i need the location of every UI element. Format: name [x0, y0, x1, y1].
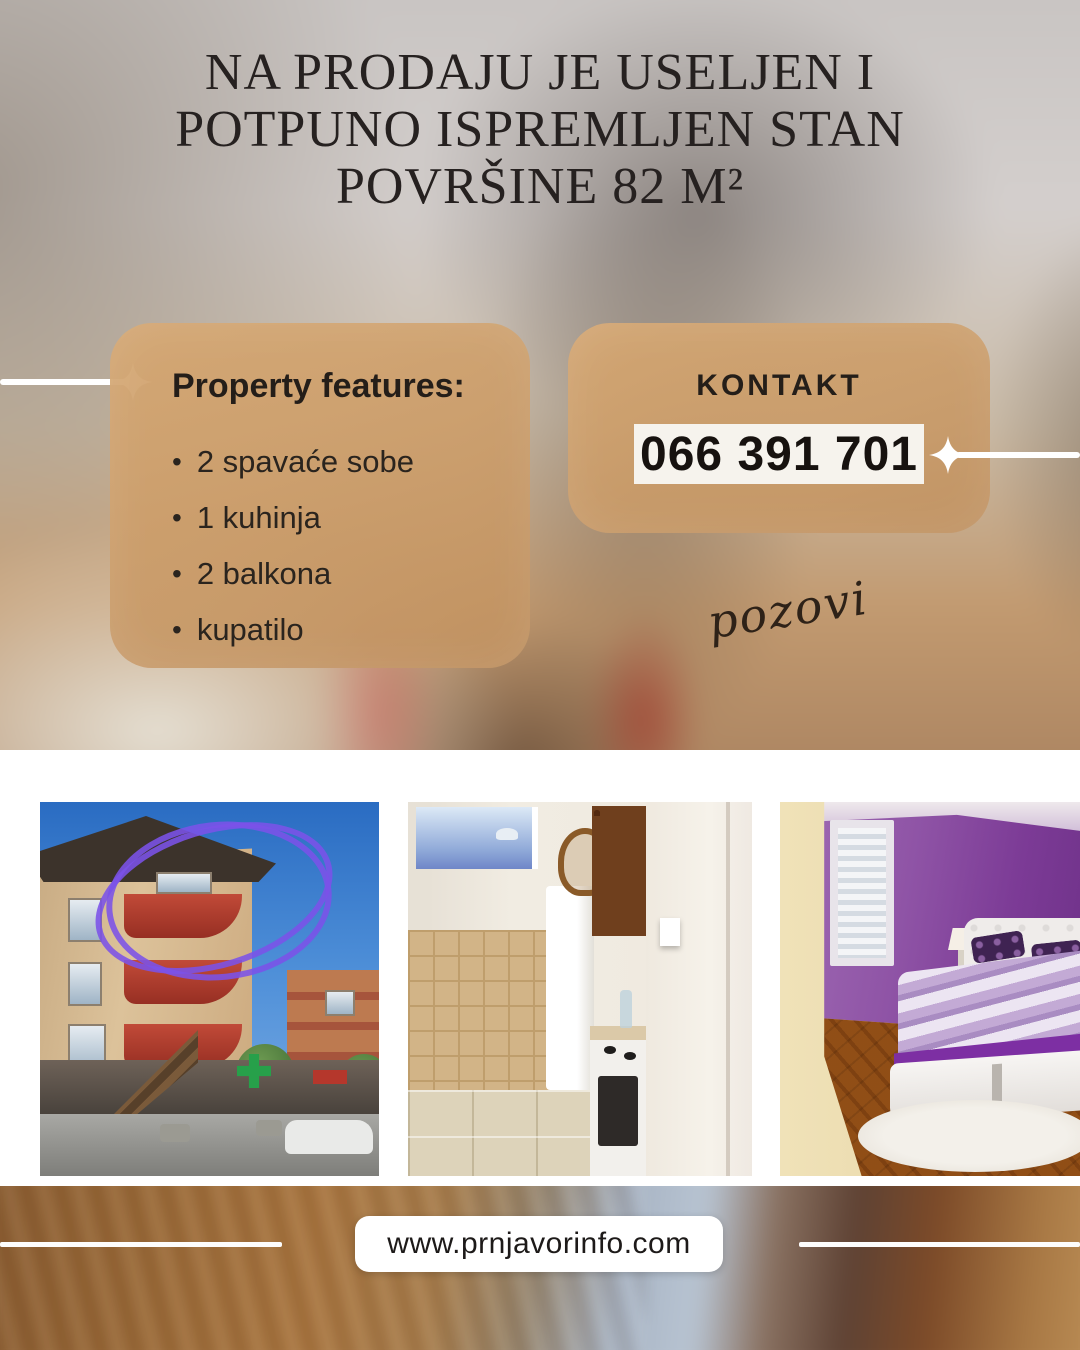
- burner: [604, 1046, 616, 1054]
- right-footer-line: [799, 1242, 1080, 1247]
- list-item: • 2 spavaće sobe: [172, 434, 530, 490]
- title-line-1: NA PRODAJU JE USELJEN I: [0, 44, 1080, 101]
- hero-section: NA PRODAJU JE USELJEN I POTPUNO ISPREMLJ…: [0, 0, 1080, 750]
- page-title: NA PRODAJU JE USELJEN I POTPUNO ISPREMLJ…: [0, 44, 1080, 215]
- parked-car: [285, 1120, 373, 1154]
- upper-cabinets: [592, 806, 646, 936]
- features-list: • 2 spavaće sobe • 1 kuhinja • 2 balkona…: [172, 434, 530, 658]
- list-item: • 2 balkona: [172, 546, 530, 602]
- water-bottle: [620, 990, 632, 1028]
- footer-section: www.prnjavorinfo.com: [0, 1186, 1080, 1350]
- ceiling-lamp: [496, 828, 518, 840]
- window: [325, 990, 355, 1016]
- burner: [624, 1052, 636, 1060]
- contact-card: KONTAKT 066 391 701: [568, 323, 990, 533]
- photo-building-exterior: [40, 802, 379, 1176]
- door-edge: [726, 802, 730, 1176]
- bullet-icon: •: [172, 616, 182, 644]
- bullet-icon: •: [172, 448, 182, 476]
- right-accent-line: [956, 452, 1080, 458]
- feature-text: kupatilo: [197, 612, 304, 648]
- features-heading: Property features:: [110, 323, 530, 406]
- bedroom-window: [830, 820, 894, 966]
- white-rug: [858, 1100, 1080, 1172]
- title-line-3: POVRŠINE 82 M²: [0, 158, 1080, 215]
- feature-text: 2 balkona: [197, 556, 331, 592]
- photo-bedroom: [780, 802, 1080, 1176]
- photo-kitchen: [408, 802, 752, 1176]
- bullet-icon: •: [172, 560, 182, 588]
- list-item: • 1 kuhinja: [172, 490, 530, 546]
- contact-heading: KONTAKT: [568, 369, 990, 403]
- flyer-canvas: NA PRODAJU JE USELJEN I POTPUNO ISPREMLJ…: [0, 0, 1080, 1350]
- feature-text: 2 spavaće sobe: [197, 444, 414, 480]
- hallway-wall: [646, 802, 752, 1176]
- planter: [160, 1124, 190, 1142]
- kitchen-window: [416, 807, 538, 869]
- light-switch: [660, 918, 680, 946]
- left-accent-line: [0, 379, 126, 385]
- planter: [256, 1120, 282, 1136]
- window: [68, 962, 102, 1006]
- left-footer-line: [0, 1242, 282, 1247]
- phone-number[interactable]: 066 391 701: [634, 424, 924, 484]
- list-item: • kupatilo: [172, 602, 530, 658]
- shop-sign: [313, 1070, 347, 1084]
- fridge: [546, 886, 594, 1090]
- bullet-icon: •: [172, 504, 182, 532]
- oven-door: [598, 1076, 638, 1146]
- website-link[interactable]: www.prnjavorinfo.com: [355, 1216, 723, 1272]
- tiled-wall: [408, 930, 558, 1092]
- property-features-card: Property features: • 2 spavaće sobe • 1 …: [110, 323, 530, 668]
- storefront-row: [40, 1060, 379, 1118]
- photo-strip: [0, 786, 1080, 1160]
- title-line-2: POTPUNO ISPREMLJEN STAN: [0, 101, 1080, 158]
- feature-text: 1 kuhinja: [197, 500, 321, 536]
